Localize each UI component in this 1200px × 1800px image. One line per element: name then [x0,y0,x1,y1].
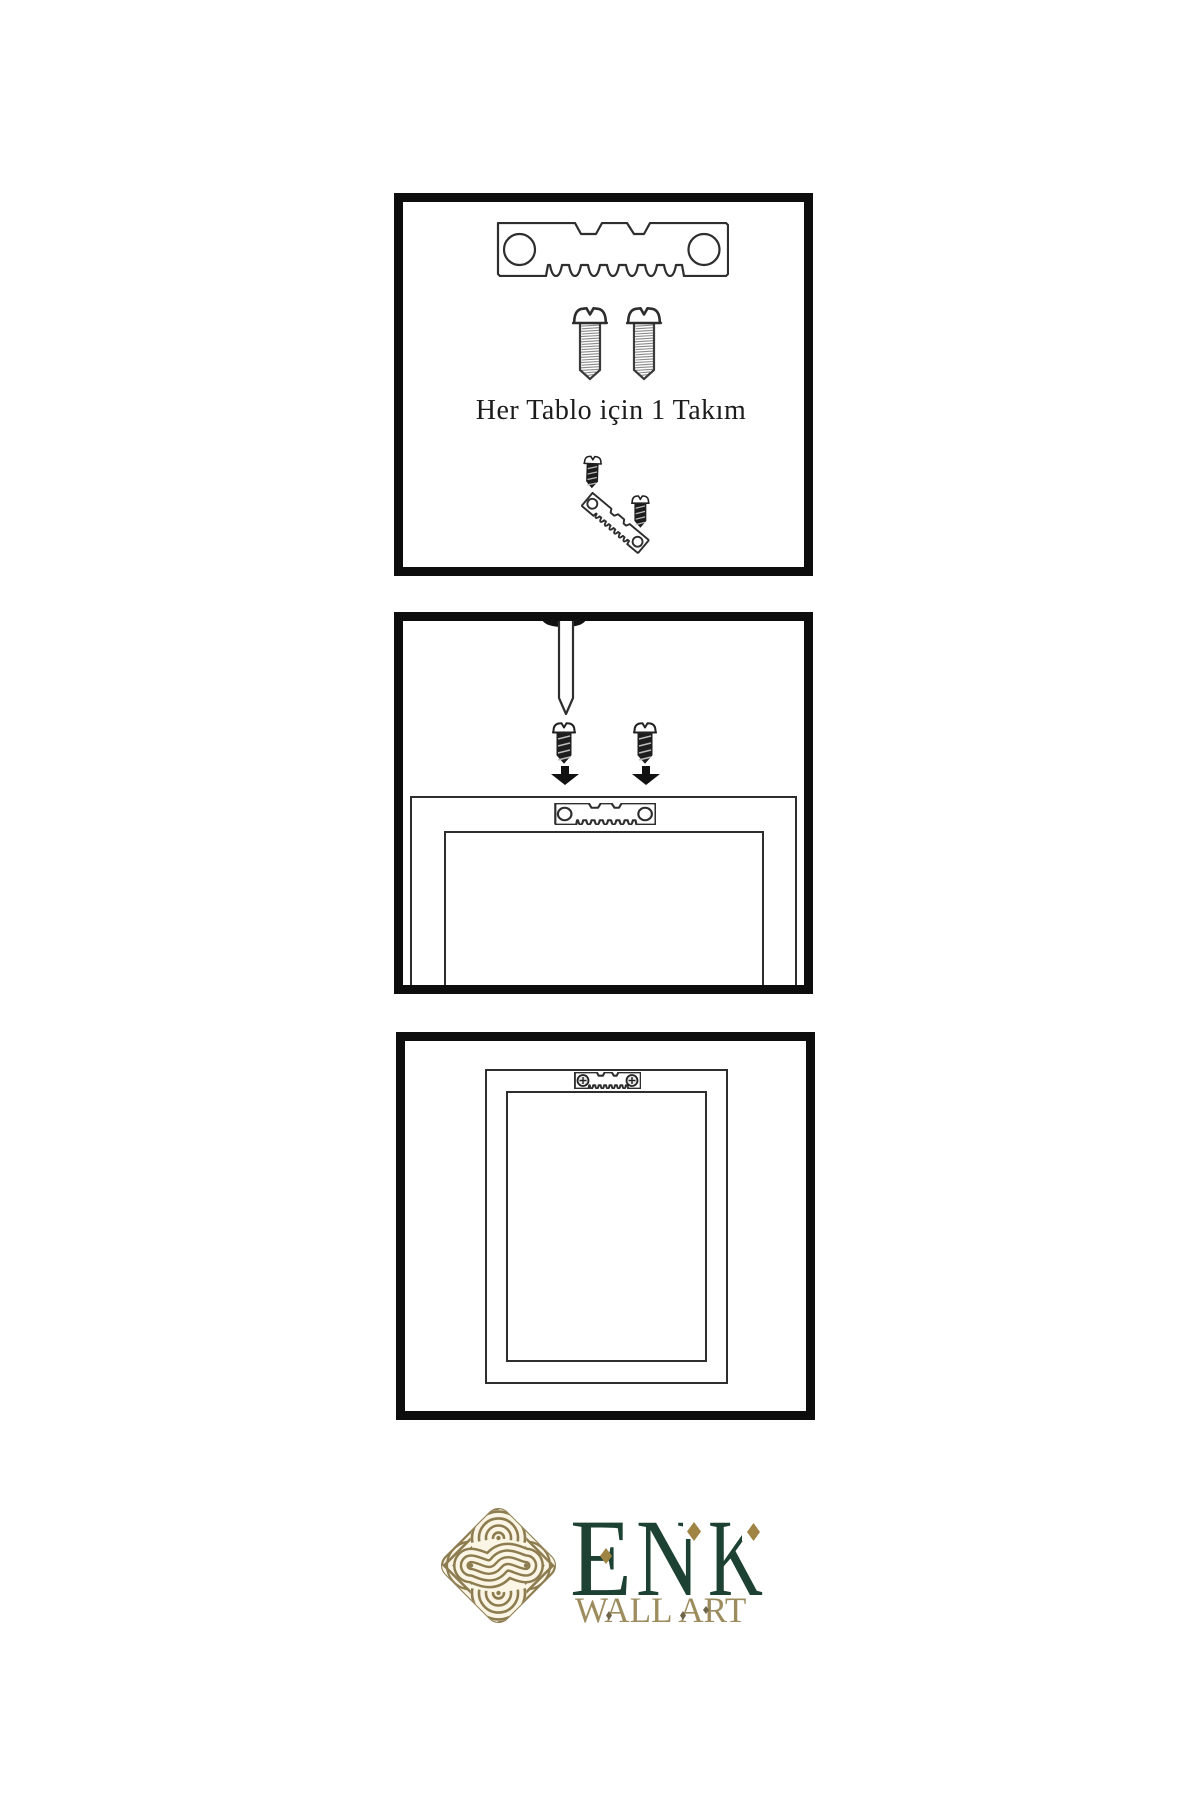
svg-text:WALL ART: WALL ART [575,1590,747,1630]
svg-text:Her Tablo için 1 Takım: Her Tablo için 1 Takım [476,395,746,426]
